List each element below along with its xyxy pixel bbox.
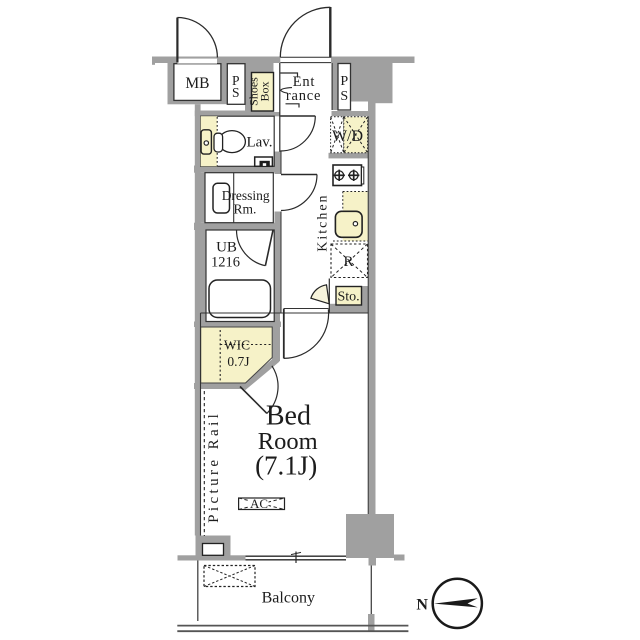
svg-text:Balcony: Balcony [262, 590, 315, 607]
svg-text:rance: rance [286, 88, 321, 104]
svg-text:S: S [232, 85, 240, 100]
svg-text:Box: Box [258, 81, 272, 101]
svg-text:Kitchen: Kitchen [315, 193, 330, 251]
svg-text:R: R [343, 254, 353, 270]
svg-text:0.7J: 0.7J [227, 354, 249, 369]
svg-text:(7.1J): (7.1J) [255, 451, 317, 481]
svg-text:Bed: Bed [266, 401, 311, 432]
svg-text:N: N [416, 597, 428, 614]
svg-text:Rm.: Rm. [234, 202, 257, 217]
svg-text:1216: 1216 [211, 255, 240, 271]
svg-text:MB: MB [185, 75, 209, 92]
svg-text:AC: AC [250, 496, 268, 511]
svg-text:Sto.: Sto. [338, 289, 360, 304]
svg-text:P: P [340, 74, 348, 89]
svg-text:S: S [340, 89, 348, 104]
svg-text:Lav.: Lav. [246, 135, 272, 151]
svg-text:UB: UB [216, 239, 237, 255]
svg-text:Picture Rail: Picture Rail [206, 411, 222, 523]
svg-text:WIC: WIC [224, 338, 250, 353]
svg-text:W/D: W/D [332, 128, 363, 145]
